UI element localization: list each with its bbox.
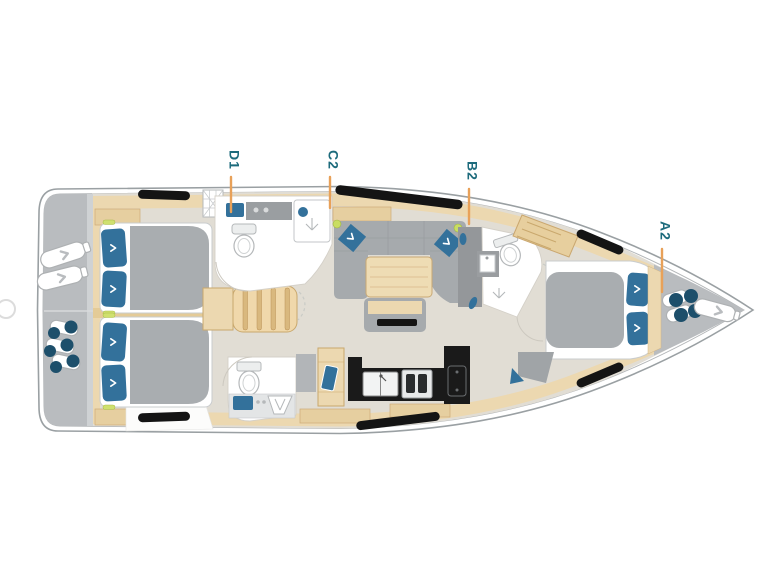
plant-icon (333, 220, 341, 228)
companionway-stairs (203, 286, 297, 332)
forward-bulkhead (648, 266, 661, 354)
toilet-icon (237, 362, 261, 395)
cabin-label-b2: B2 (464, 161, 480, 181)
towel-icon (460, 233, 467, 245)
stern-platform (43, 194, 93, 426)
galley-wood-cabinet (318, 348, 344, 406)
fridge-unit (444, 346, 470, 404)
cabin-label-a2: A2 (657, 221, 673, 241)
tv-sideboard (364, 298, 426, 332)
hull-window-starboard-aft (138, 412, 190, 423)
hull-window-port-aft (138, 190, 190, 201)
round-basin-icon (298, 207, 309, 218)
sink-icon (477, 251, 499, 277)
life-ring-icon (0, 300, 15, 318)
yacht-floorplan-page: D1 C2 B2 A2 (0, 0, 768, 576)
yacht-floorplan-canvas: D1 C2 B2 A2 (0, 0, 768, 576)
double-sink-icon (363, 372, 398, 396)
cabinet-gray (296, 354, 316, 392)
aft-cabin-port-bed (100, 220, 212, 316)
vanity-counter (246, 202, 292, 220)
cabin-label-c2: C2 (325, 150, 341, 170)
salon-table (366, 257, 432, 297)
sink-icon (226, 203, 244, 217)
aft-cabin-starboard-bed (100, 313, 212, 410)
tv-screen (377, 319, 417, 326)
toilet-icon (232, 224, 256, 257)
forward-cabin-bed (546, 261, 660, 359)
cabin-label-d1: D1 (226, 150, 242, 170)
head-starboard-aft (223, 357, 296, 421)
sink-icon (233, 396, 253, 410)
stove-icon (402, 370, 432, 398)
